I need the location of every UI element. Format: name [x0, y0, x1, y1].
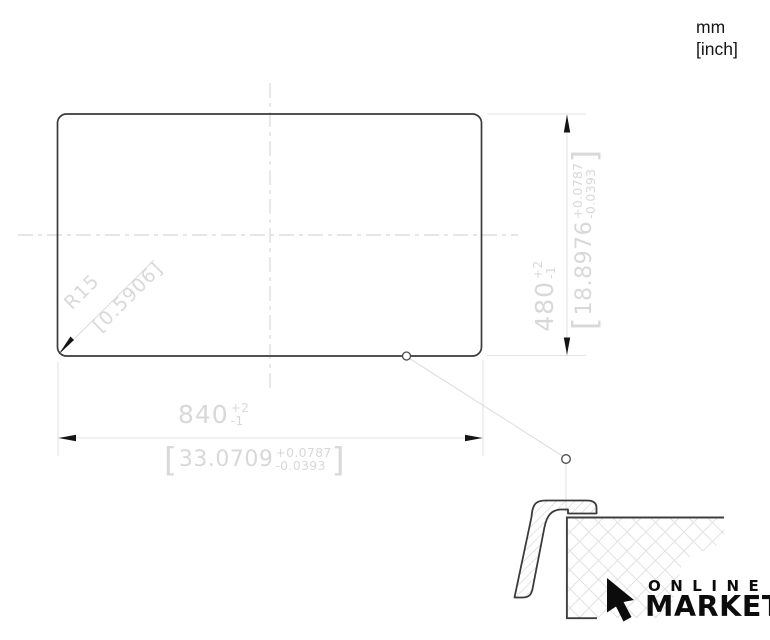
arrowhead-left [59, 435, 77, 441]
height-mm-tol-minus: -1 [545, 260, 558, 279]
radius-arrowhead [59, 337, 75, 355]
height-mm-value: 480 [532, 281, 558, 332]
width-dimension-mm-label: 840 +2 -1 [178, 402, 249, 428]
bracket-open: [ [568, 317, 601, 330]
units-inch: [inch] [696, 38, 738, 60]
width-mm-tol-minus: -1 [231, 415, 250, 428]
width-dimension-inch-label: [ 33.0709 +0.0787 -0.0393 ] [164, 442, 345, 476]
height-mm-tolerance: +2 -1 [532, 260, 558, 279]
width-inch-tol-plus: +0.0787 [275, 446, 331, 460]
units-mm: mm [696, 16, 738, 38]
detail-leader [403, 352, 571, 512]
arrowhead-down [564, 338, 570, 356]
technical-drawing-page: mm [inch] 840 +2 -1 [ 33.0709 +0.0787 -0… [0, 0, 770, 640]
arrowhead-up [564, 115, 570, 133]
width-inch-tol-minus: -0.0393 [275, 459, 331, 473]
edge-marker-circle [403, 352, 411, 360]
arrowhead-right [465, 435, 483, 441]
bracket-close: ] [332, 443, 345, 476]
centerlines [18, 83, 518, 389]
height-dimension-inch-label: [ 18.8976 +0.0787 -0.0393 ] [567, 150, 601, 331]
height-dimension-mm-label: 480 +2 -1 [532, 260, 558, 331]
height-inch-tol-minus: -0.0393 [584, 163, 598, 219]
logo-line2: MARKET [645, 590, 770, 623]
detail-marker-circle [562, 455, 571, 464]
detail-leader-line [410, 359, 563, 457]
width-inch-tolerance: +0.0787 -0.0393 [275, 446, 331, 473]
height-inch-tol-plus: +0.0787 [571, 163, 585, 219]
units-label: mm [inch] [696, 16, 738, 60]
height-inch-value: 18.8976 [572, 221, 597, 315]
height-inch-tolerance: +0.0787 -0.0393 [571, 163, 598, 219]
width-mm-tolerance: +2 -1 [231, 402, 250, 428]
width-inch-value: 33.0709 [179, 447, 273, 472]
bracket-close: ] [568, 150, 601, 163]
width-mm-value: 840 [178, 402, 229, 428]
bracket-open: [ [164, 443, 177, 476]
